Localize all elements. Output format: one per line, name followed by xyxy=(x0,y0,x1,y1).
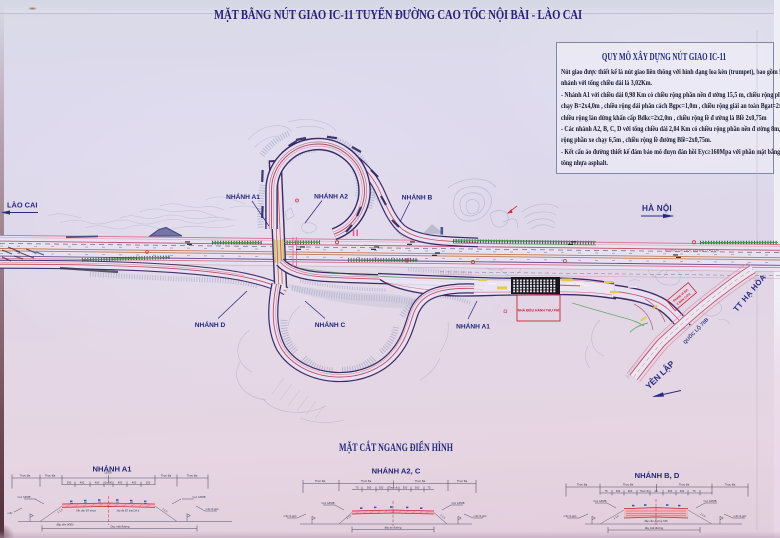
svg-text:Thực địa: Thực địa xyxy=(725,483,736,487)
svg-text:400: 400 xyxy=(132,480,137,484)
svg-text:Thực địa: Thực địa xyxy=(679,483,690,487)
svg-text:15500: 15500 xyxy=(104,471,112,475)
svg-text:mốc lộ giới: mốc lộ giới xyxy=(206,507,219,511)
svg-text:ĐƯỜNG CAO TỐC NỘI BÀI - LÀO CA: ĐƯỜNG CAO TỐC NỘI BÀI - LÀO CAI xyxy=(665,247,719,252)
svg-text:mốc lộ giới: mốc lộ giới xyxy=(564,514,577,518)
svg-text:LÀO CAI: LÀO CAI xyxy=(7,201,37,210)
svg-text:1:1,5: 1:1,5 xyxy=(161,507,168,514)
svg-text:lớp đá BT loại DA d: lớp đá BT loại DA d xyxy=(117,508,140,512)
svg-text:mốc lộ giới: mốc lộ giới xyxy=(734,514,747,518)
svg-text:Cọc GPMB: Cọc GPMB xyxy=(322,501,335,505)
svg-text:75: 75 xyxy=(693,489,696,493)
svg-text:400: 400 xyxy=(80,480,85,484)
svg-text:Thực đị: Thực đị xyxy=(388,485,398,489)
svg-text:đáy áo đường: đáy áo đường xyxy=(385,525,402,529)
svg-text:đáy mặt đường: đáy mặt đường xyxy=(645,526,664,530)
svg-text:mốc: mốc xyxy=(8,511,14,515)
svg-text:đắp nền (K95): đắp nền (K95) xyxy=(56,522,73,527)
svg-text:Thực đị: Thực đị xyxy=(639,489,649,493)
svg-text:75: 75 xyxy=(428,485,431,489)
svg-text:75: 75 xyxy=(356,485,359,489)
svg-text:300: 300 xyxy=(367,485,372,489)
svg-text:Thực địa: Thực địa xyxy=(187,474,198,478)
svg-text:Thực địa: Thực địa xyxy=(623,483,634,487)
svg-text:NHÁNH A2, C: NHÁNH A2, C xyxy=(372,467,421,476)
svg-text:1:1,5: 1:1,5 xyxy=(56,507,63,514)
svg-text:1:1,5: 1:1,5 xyxy=(439,513,446,520)
svg-text:300: 300 xyxy=(403,485,408,489)
svg-text:Cọc GPMB: Cọc GPMB xyxy=(193,495,206,499)
svg-text:200: 200 xyxy=(146,480,151,484)
svg-text:300: 300 xyxy=(628,489,633,493)
svg-text:Cọc GPMB: Cọc GPMB xyxy=(594,499,607,503)
svg-text:NHÁNH C: NHÁNH C xyxy=(315,320,346,329)
svg-text:300: 300 xyxy=(680,489,685,493)
svg-text:NHÁNH B: NHÁNH B xyxy=(402,193,433,202)
svg-text:mốc lộ giới: mốc lộ giới xyxy=(474,514,487,518)
svg-text:400: 400 xyxy=(95,480,100,484)
svg-text:25: 25 xyxy=(655,489,658,493)
svg-text:Cọc GPMB: Cọc GPMB xyxy=(18,495,31,499)
svg-text:300: 300 xyxy=(668,489,673,493)
svg-text:Thực địa: Thực địa xyxy=(45,474,56,478)
svg-text:300: 300 xyxy=(415,485,420,489)
svg-text:NHÁNH A1: NHÁNH A1 xyxy=(456,322,490,331)
svg-text:300: 300 xyxy=(616,489,621,493)
svg-text:Cọc GPMB: Cọc GPMB xyxy=(704,499,717,503)
svg-text:2x100: 2x100 xyxy=(105,480,113,484)
svg-text:NHÁNH B, D: NHÁNH B, D xyxy=(635,471,680,480)
svg-text:MẶT CẮT NGANG ĐIỂN HÌNH: MẶT CẮT NGANG ĐIỂN HÌNH xyxy=(339,439,453,454)
svg-text:300: 300 xyxy=(379,485,384,489)
svg-text:NHÁNH A2: NHÁNH A2 xyxy=(314,192,348,201)
svg-text:mốc lộ giới: mốc lộ giới xyxy=(284,514,297,518)
svg-text:Thực địa: Thực địa xyxy=(161,474,172,478)
svg-text:HÀ NỘI: HÀ NỘI xyxy=(642,202,672,213)
svg-text:Thực địa: Thực địa xyxy=(361,479,372,483)
svg-text:Thực địa: Thực địa xyxy=(457,479,468,483)
svg-text:Dọc mặt đường: Dọc mặt đường xyxy=(111,524,130,528)
svg-text:200: 200 xyxy=(67,480,72,484)
svg-text:400: 400 xyxy=(118,480,123,484)
svg-text:Thực địa: Thực địa xyxy=(577,483,588,487)
svg-text:Cọc GPMB: Cọc GPMB xyxy=(452,501,465,505)
svg-text:75: 75 xyxy=(605,489,608,493)
svg-text:Kết cấu BT nhựa: Kết cấu BT nhựa xyxy=(76,508,96,512)
svg-text:NHÀ ĐIỀU HÀNH THU PHÍ: NHÀ ĐIỀU HÀNH THU PHÍ xyxy=(518,308,561,313)
svg-text:đắp nền đường K95: đắp nền đường K95 xyxy=(644,518,668,523)
svg-text:Thực địa: Thực địa xyxy=(20,474,31,478)
svg-text:NHÁNH A1: NHÁNH A1 xyxy=(226,192,260,201)
svg-text:NHÁNH A1: NHÁNH A1 xyxy=(93,465,133,474)
svg-text:1:1,5: 1:1,5 xyxy=(345,513,352,520)
svg-text:NHÁNH D: NHÁNH D xyxy=(195,320,226,329)
svg-text:Thực địa: Thực địa xyxy=(315,479,326,483)
svg-text:Thực địa: Thực địa xyxy=(415,479,426,483)
